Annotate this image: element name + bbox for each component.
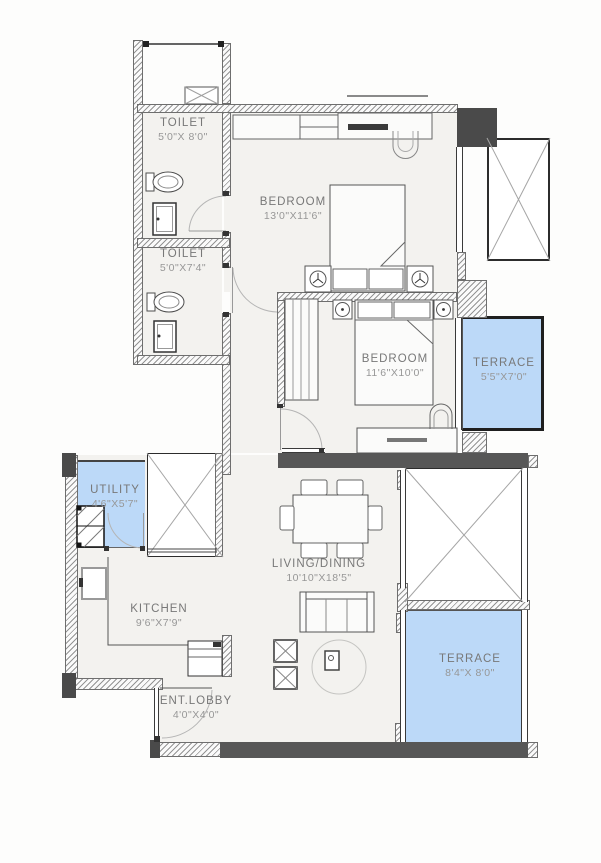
floor-plan: TOILET 5'0"X 8'0" TOILET 5'0"X7'4" BEDRO…	[0, 0, 601, 863]
fridge	[82, 568, 106, 599]
counter	[108, 557, 190, 645]
door-utility	[108, 513, 143, 548]
toilet1-fixtures	[146, 172, 183, 235]
door-entrance	[162, 690, 212, 738]
sofa	[300, 592, 374, 632]
towel-rail	[430, 404, 452, 429]
sofa-set	[274, 592, 374, 694]
shaft1-vent	[143, 41, 224, 104]
bedroom2-furniture	[285, 299, 457, 453]
washing-machine	[77, 506, 104, 547]
door-bedroom2	[281, 409, 322, 450]
dining-table	[293, 495, 368, 543]
door-toilet1	[189, 196, 226, 231]
dining-set	[280, 480, 382, 558]
door-toilet2	[233, 268, 277, 312]
plan-linework	[0, 0, 601, 863]
bedroom1-furniture	[233, 113, 433, 292]
kitchen-fixtures	[79, 557, 222, 676]
toilet2-fixtures	[147, 292, 184, 352]
